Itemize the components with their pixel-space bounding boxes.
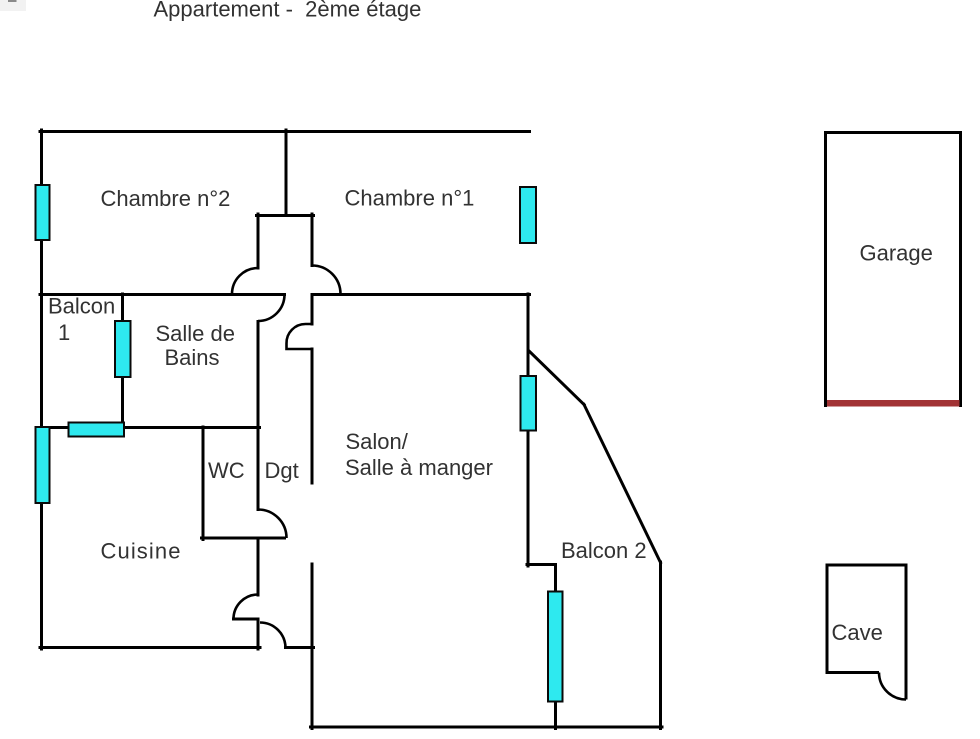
svg-text:Salle de: Salle de — [156, 321, 236, 346]
svg-text:Cuisine: Cuisine — [101, 539, 182, 564]
svg-text:Cave: Cave — [832, 620, 883, 645]
svg-text:Dgt: Dgt — [265, 458, 299, 483]
svg-text:Garage: Garage — [860, 241, 933, 266]
svg-text:Bains: Bains — [165, 345, 220, 370]
svg-text:Balcon: Balcon — [48, 294, 115, 319]
svg-text:1: 1 — [58, 320, 70, 345]
svg-text:Chambre n°1: Chambre n°1 — [345, 186, 475, 211]
svg-text:WC: WC — [208, 458, 245, 483]
svg-text:Balcon 2: Balcon 2 — [561, 538, 647, 563]
svg-text:Appartement - 2ème étage: Appartement - 2ème étage — [154, 0, 422, 22]
svg-text:Chambre n°2: Chambre n°2 — [101, 186, 231, 211]
svg-text:Salon/: Salon/ — [346, 429, 409, 454]
svg-text:Salle à manger: Salle à manger — [345, 455, 493, 480]
